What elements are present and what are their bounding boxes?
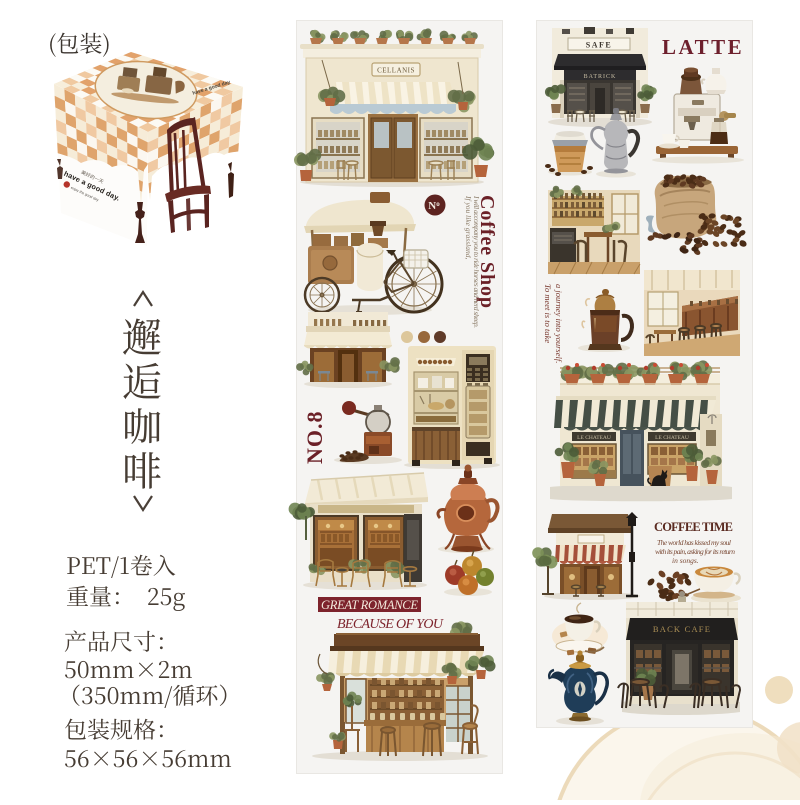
svg-text:a journey into yourself.: a journey into yourself. [554, 284, 564, 363]
svg-text:The world has kissed my soul: The world has kissed my soul [657, 538, 731, 547]
svg-text:with its pain, asking for its: with its pain, asking for its return [655, 547, 735, 556]
svg-text:LATTE: LATTE [662, 35, 744, 59]
svg-text:LE CHATEAU: LE CHATEAU [577, 435, 611, 441]
svg-text:BACK CAFE: BACK CAFE [653, 624, 711, 634]
svg-text:GREAT ROMANCE: GREAT ROMANCE [321, 598, 418, 612]
svg-text:I will accompany you to ride h: I will accompany you to ride horses and … [472, 195, 481, 328]
svg-text:CELLANIS: CELLANIS [377, 67, 415, 75]
svg-text:To meet is to take: To meet is to take [543, 284, 553, 343]
svg-text:BECAUSE OF YOU: BECAUSE OF YOU [337, 617, 444, 632]
svg-text:If you like grassland,: If you like grassland, [464, 195, 473, 259]
svg-text:BATRICK: BATRICK [584, 74, 617, 80]
svg-text:SAFE: SAFE [586, 41, 612, 50]
svg-text:in songs.: in songs. [672, 556, 699, 565]
svg-text:COFFEE TIME: COFFEE TIME [654, 520, 733, 534]
svg-text:NO.8: NO.8 [302, 411, 327, 465]
svg-text:LE CHATEAU: LE CHATEAU [655, 435, 689, 441]
